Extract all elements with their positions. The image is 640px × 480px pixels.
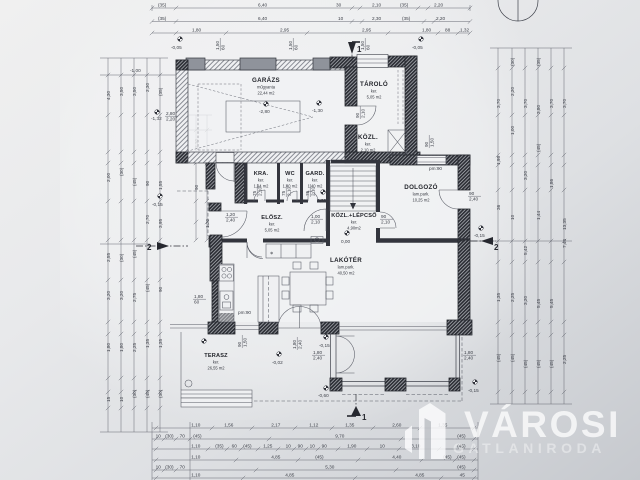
svg-text:(35): (35) [536, 57, 541, 66]
svg-text:GARÁZS: GARÁZS [252, 77, 280, 84]
svg-text:(45): (45) [315, 454, 324, 459]
svg-text:26,55 m2: 26,55 m2 [207, 366, 225, 371]
svg-text:-0,15: -0,15 [152, 202, 163, 207]
svg-text:1,80: 1,80 [464, 350, 474, 355]
svg-text:5,42: 5,42 [523, 245, 528, 255]
svg-text:(30): (30) [119, 167, 124, 176]
svg-text:88: 88 [445, 28, 451, 33]
svg-text:(35): (35) [400, 3, 409, 8]
svg-text:2,10: 2,10 [372, 3, 382, 8]
svg-text:-0,02: -0,02 [272, 360, 283, 365]
svg-text:2,25: 2,25 [562, 354, 567, 364]
svg-text:2,80: 2,80 [166, 111, 176, 116]
svg-text:13,35: 13,35 [562, 218, 567, 230]
svg-text:90: 90 [424, 141, 429, 147]
svg-text:75: 75 [305, 190, 310, 196]
svg-text:1,35: 1,35 [158, 338, 163, 348]
svg-text:TERASZ: TERASZ [204, 353, 228, 359]
svg-text:(30): (30) [165, 464, 174, 469]
svg-text:DOLGOZÓ: DOLGOZÓ [404, 183, 437, 191]
svg-text:-1,32: -1,32 [151, 116, 162, 121]
svg-text:lam.park.: lam.park. [338, 265, 355, 270]
svg-text:90: 90 [469, 191, 475, 196]
svg-text:90: 90 [194, 184, 199, 190]
svg-text:-0,60: -0,60 [318, 393, 329, 398]
svg-text:2,95: 2,95 [362, 28, 372, 33]
svg-text:1,32: 1,32 [460, 28, 470, 33]
svg-text:1,50: 1,50 [288, 40, 293, 50]
svg-text:-0,15: -0,15 [474, 233, 485, 238]
svg-text:4,85: 4,85 [285, 472, 295, 477]
svg-text:90: 90 [322, 443, 328, 448]
svg-text:10,25 m2: 10,25 m2 [412, 198, 430, 203]
svg-text:2,30: 2,30 [145, 82, 150, 92]
svg-text:ker.: ker. [269, 222, 276, 227]
svg-text:2,20: 2,20 [434, 3, 444, 8]
svg-text:1,10: 1,10 [191, 454, 201, 459]
svg-text:10: 10 [156, 433, 162, 438]
svg-text:ker.: ker. [371, 89, 378, 94]
svg-text:10: 10 [510, 214, 515, 220]
svg-text:ker.: ker. [351, 220, 358, 225]
svg-text:90: 90 [381, 214, 387, 219]
svg-text:-2,80: -2,80 [259, 109, 270, 114]
svg-text:60: 60 [232, 443, 238, 448]
svg-text:1,10: 1,10 [191, 443, 201, 448]
svg-text:10: 10 [338, 16, 344, 21]
svg-text:90: 90 [298, 443, 304, 448]
svg-text:1,10: 1,10 [191, 422, 201, 427]
svg-text:(35): (35) [158, 87, 163, 96]
svg-text:2,17: 2,17 [271, 422, 281, 427]
svg-text:30: 30 [336, 3, 342, 8]
svg-text:(45): (45) [457, 464, 466, 469]
svg-text:2: 2 [494, 243, 499, 252]
svg-text:1,90: 1,90 [347, 443, 357, 448]
svg-text:❄: ❄ [270, 251, 273, 256]
svg-text:(30): (30) [165, 433, 174, 438]
svg-text:1,80: 1,80 [106, 342, 111, 352]
svg-text:1,80: 1,80 [192, 28, 202, 33]
svg-text:40,50 m2: 40,50 m2 [337, 271, 355, 276]
svg-text:2,60: 2,60 [392, 422, 402, 427]
svg-text:1,80: 1,80 [292, 339, 297, 349]
svg-text:(45): (45) [145, 283, 150, 292]
svg-text:2,20: 2,20 [436, 16, 446, 21]
svg-text:1,55: 1,55 [158, 180, 163, 190]
svg-text:2,40: 2,40 [313, 356, 323, 361]
svg-text:1,20: 1,20 [226, 212, 236, 217]
svg-text:3,70: 3,70 [496, 98, 501, 108]
svg-text:1,44: 1,44 [536, 210, 541, 220]
svg-text:2,10: 2,10 [381, 220, 391, 225]
svg-text:(35): (35) [402, 16, 411, 21]
svg-text:KRA.: KRA. [254, 171, 269, 177]
svg-text:ELŐSZ.: ELŐSZ. [261, 214, 283, 221]
svg-text:1,80: 1,80 [119, 342, 124, 352]
svg-text:90: 90 [158, 286, 163, 292]
svg-text:-1,30: -1,30 [312, 108, 323, 113]
svg-text:3,20: 3,20 [106, 290, 111, 300]
svg-text:(30): (30) [510, 57, 515, 66]
svg-text:lam.park.: lam.park. [413, 192, 430, 197]
svg-text:1: 1 [362, 413, 367, 422]
svg-text:2,25: 2,25 [510, 292, 515, 302]
svg-text:1,12: 1,12 [309, 422, 319, 427]
svg-text:75: 75 [252, 190, 257, 196]
svg-text:(30): (30) [119, 253, 124, 262]
svg-text:1,25: 1,25 [263, 443, 273, 448]
svg-text:(45): (45) [193, 433, 202, 438]
svg-text:90: 90 [237, 341, 242, 347]
svg-text:2,10: 2,10 [287, 186, 292, 196]
svg-text:műgyanta: műgyanta [257, 85, 276, 90]
svg-text:4,40: 4,40 [392, 454, 402, 459]
svg-text:1,56: 1,56 [224, 422, 234, 427]
svg-text:GARD.: GARD. [305, 171, 324, 177]
svg-text:2,40: 2,40 [464, 356, 474, 361]
svg-text:ker.: ker. [213, 360, 220, 365]
svg-text:(45): (45) [243, 443, 252, 448]
svg-text:3,50: 3,50 [119, 86, 124, 96]
svg-text:1,86: 1,86 [549, 178, 554, 188]
svg-text:-0,15: -0,15 [468, 388, 479, 393]
svg-text:36: 36 [496, 204, 501, 210]
svg-text:2,10: 2,10 [311, 220, 321, 225]
svg-text:-1,00: -1,00 [130, 68, 141, 73]
svg-text:pm:90: pm:90 [238, 310, 251, 315]
svg-text:(35): (35) [158, 16, 167, 21]
svg-text:TÁROLÓ: TÁROLÓ [360, 80, 388, 88]
svg-text:2,10 m2: 2,10 m2 [361, 148, 377, 153]
svg-text:2,95: 2,95 [280, 28, 290, 33]
svg-text:(45): (45) [523, 359, 528, 368]
svg-text:90: 90 [145, 180, 150, 186]
svg-text:15: 15 [106, 396, 111, 402]
svg-text:pm:90: pm:90 [429, 166, 442, 171]
svg-text:WC: WC [285, 171, 295, 177]
svg-text:10: 10 [156, 464, 162, 469]
svg-text:5,05 m2: 5,05 m2 [367, 95, 383, 100]
svg-text:10: 10 [310, 443, 316, 448]
svg-text:GATLANIRODA: GATLANIRODA [453, 440, 606, 456]
svg-text:2,40: 2,40 [226, 218, 236, 223]
svg-text:ker.: ker. [312, 178, 319, 183]
svg-text:2,40: 2,40 [469, 197, 479, 202]
svg-text:3,20: 3,20 [523, 295, 528, 305]
svg-text:3,50: 3,50 [132, 86, 137, 96]
svg-text:3,95: 3,95 [158, 218, 163, 228]
svg-text:1,35: 1,35 [345, 422, 355, 427]
svg-text:1,00: 1,00 [510, 125, 515, 135]
svg-text:2,20: 2,20 [166, 117, 176, 122]
svg-text:2,10: 2,10 [258, 186, 263, 196]
svg-text:60: 60 [366, 44, 371, 50]
svg-text:2,20: 2,20 [510, 86, 515, 96]
svg-text:3,70: 3,70 [549, 98, 554, 108]
svg-text:6,40: 6,40 [258, 3, 268, 8]
svg-text:ker.: ker. [258, 178, 265, 183]
svg-text:9,70: 9,70 [335, 433, 345, 438]
svg-text:60: 60 [194, 300, 200, 305]
svg-text:10: 10 [380, 443, 386, 448]
svg-text:1,10: 1,10 [191, 472, 201, 477]
svg-text:6,40: 6,40 [258, 16, 268, 21]
svg-text:(30): (30) [132, 389, 137, 398]
svg-text:3,20: 3,20 [119, 290, 124, 300]
svg-text:5,30: 5,30 [325, 464, 335, 469]
svg-text:1,80: 1,80 [194, 294, 204, 299]
svg-text:10: 10 [286, 443, 292, 448]
svg-text:1,00: 1,00 [311, 214, 321, 219]
svg-text:1,35: 1,35 [496, 292, 501, 302]
svg-text:5,45: 5,45 [549, 298, 554, 308]
svg-text:ker.: ker. [287, 178, 294, 183]
svg-text:(45): (45) [549, 359, 554, 368]
svg-text:2,70: 2,70 [145, 214, 150, 224]
svg-text:2: 2 [147, 243, 152, 252]
svg-text:2,75: 2,75 [132, 292, 137, 302]
svg-text:(35): (35) [215, 443, 224, 448]
svg-text:70: 70 [180, 464, 186, 469]
svg-text:4,85: 4,85 [271, 454, 281, 459]
svg-text:5,45: 5,45 [536, 298, 541, 308]
svg-text:1,80: 1,80 [422, 28, 432, 33]
svg-text:1,50: 1,50 [430, 137, 435, 147]
svg-text:10: 10 [119, 396, 124, 402]
svg-text:3,80: 3,80 [536, 104, 541, 114]
svg-text:90: 90 [355, 112, 360, 118]
svg-text:2,10: 2,10 [361, 108, 366, 118]
svg-text:(45): (45) [496, 353, 501, 362]
svg-text:(45): (45) [536, 143, 541, 152]
svg-text:70: 70 [180, 433, 186, 438]
svg-text:4,30: 4,30 [106, 90, 111, 100]
svg-text:KÖZL.+LÉPCSŐ: KÖZL.+LÉPCSŐ [331, 211, 377, 219]
svg-text:75: 75 [281, 190, 286, 196]
svg-text:1,35: 1,35 [145, 338, 150, 348]
svg-text:(45): (45) [536, 359, 541, 368]
svg-text:3,20: 3,20 [523, 170, 528, 180]
svg-text:2,55: 2,55 [106, 252, 111, 262]
svg-text:60: 60 [294, 44, 299, 50]
svg-text:(45): (45) [510, 353, 515, 362]
svg-text:45: 45 [460, 472, 466, 477]
svg-text:3,70: 3,70 [562, 98, 567, 108]
svg-text:(45): (45) [132, 177, 137, 186]
svg-text:60: 60 [221, 44, 226, 50]
svg-text:-0,05: -0,05 [171, 45, 182, 50]
svg-text:1,50: 1,50 [360, 40, 365, 50]
svg-text:1,50: 1,50 [215, 40, 220, 50]
svg-text:7,40: 7,40 [562, 238, 567, 248]
svg-text:22,44 m2: 22,44 m2 [257, 91, 275, 96]
svg-text:(35): (35) [158, 3, 167, 8]
svg-text:4,85: 4,85 [415, 472, 425, 477]
svg-text:-0,05: -0,05 [412, 45, 423, 50]
svg-text:2,40: 2,40 [298, 339, 303, 349]
svg-text:(45): (45) [145, 389, 150, 398]
svg-text:0,00: 0,00 [317, 198, 327, 203]
svg-text:VÁROSI: VÁROSI [464, 404, 621, 445]
svg-text:1,98: 1,98 [496, 155, 501, 165]
svg-text:1,80: 1,80 [313, 350, 323, 355]
svg-text:ker.: ker. [365, 142, 372, 147]
svg-text:LAKÓTÉR: LAKÓTÉR [330, 256, 362, 264]
svg-text:-0,15: -0,15 [319, 343, 330, 348]
svg-text:KÖZL.: KÖZL. [358, 134, 378, 141]
svg-text:4,90m2: 4,90m2 [347, 226, 361, 231]
svg-text:0,00: 0,00 [341, 239, 351, 244]
svg-text:2,10: 2,10 [311, 186, 316, 196]
svg-text:3,70: 3,70 [523, 98, 528, 108]
svg-text:2,25: 2,25 [132, 342, 137, 352]
svg-text:2,30: 2,30 [372, 16, 382, 21]
svg-text:1,50: 1,50 [243, 337, 248, 347]
svg-text:2,00: 2,00 [106, 172, 111, 182]
svg-text:(30): (30) [158, 389, 163, 398]
svg-text:5,05 m2: 5,05 m2 [265, 228, 281, 233]
svg-text:(45): (45) [132, 249, 137, 258]
